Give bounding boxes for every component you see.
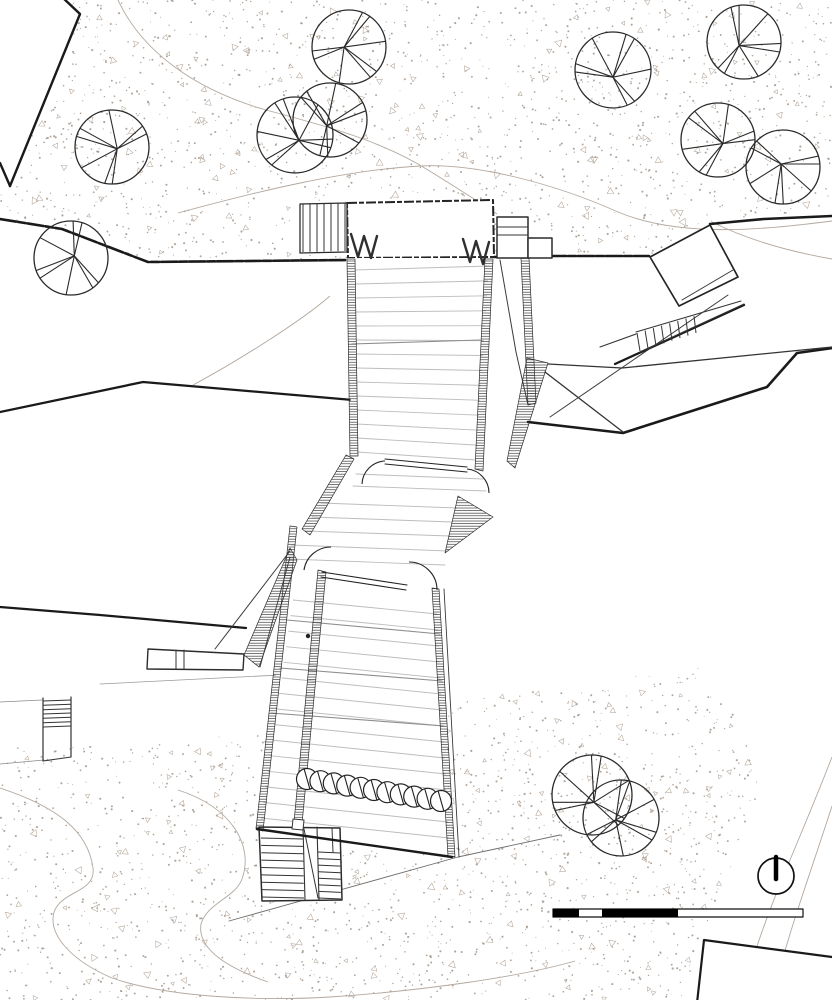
site-plan-svg (0, 0, 832, 1000)
site-plan-page (0, 0, 832, 1000)
